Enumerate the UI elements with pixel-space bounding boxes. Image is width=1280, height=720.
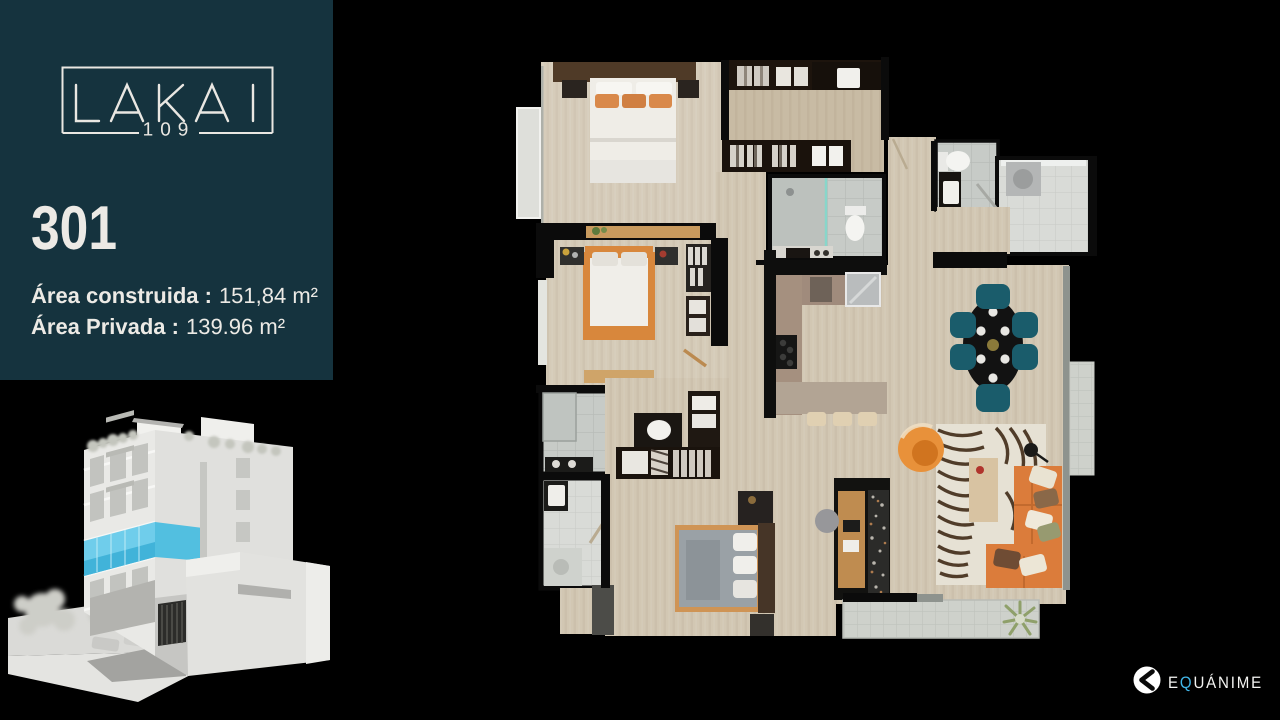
svg-text:Área construida :151,84 m²: Área construida :151,84 m² (31, 283, 318, 308)
svg-text:109: 109 (143, 120, 196, 141)
svg-text:EQUÁNIME: EQUÁNIME (1168, 673, 1263, 692)
svg-text:Área Privada :139.96 m²: Área Privada :139.96 m² (31, 314, 285, 339)
svg-text:301: 301 (31, 194, 117, 263)
